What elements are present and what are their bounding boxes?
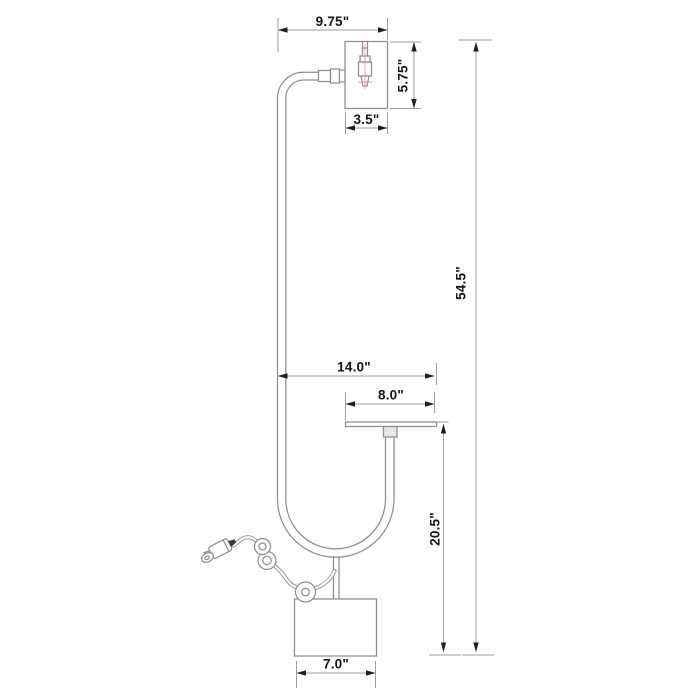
- power-cord: [234, 537, 335, 588]
- cord-coil: [255, 539, 277, 570]
- dim-tray-width: 8.0": [346, 388, 435, 421]
- shelf-mount: [384, 427, 398, 438]
- lamp-pole: [278, 72, 395, 557]
- dim-overall-height: 54.5": [454, 40, 495, 655]
- dim-label-tray-floor-height: 20.5": [428, 512, 443, 546]
- floor-lamp-dimension-diagram: 9.75" 5.75" 3.5" 54.5" 14.0" 8.0": [0, 0, 700, 700]
- diagram-canvas: 9.75" 5.75" 3.5" 54.5" 14.0" 8.0": [0, 0, 700, 700]
- swivel-joint: [319, 69, 346, 83]
- dim-tray-reach: 14.0": [278, 360, 437, 386]
- lamp-base: [295, 599, 377, 656]
- tray-shelf: [346, 422, 437, 427]
- lamp-pole-inner: [286, 80, 386, 549]
- dim-label-shade-width: 3.5": [354, 112, 380, 127]
- lamp-line-art: [200, 42, 437, 657]
- dim-shade-height: 5.75": [390, 42, 421, 109]
- base-stem: [334, 557, 340, 600]
- dim-label-tray-reach: 14.0": [337, 360, 371, 375]
- dim-base-width: 7.0": [297, 657, 376, 689]
- dim-shade-width: 3.5": [346, 112, 388, 134]
- dim-label-overall-height: 54.5": [454, 266, 469, 300]
- dim-label-base-width: 7.0": [323, 657, 349, 672]
- dim-label-head-offset: 9.75": [316, 14, 350, 29]
- cord-grommet: [296, 582, 316, 602]
- dim-label-tray-width: 8.0": [378, 388, 404, 403]
- dim-tray-floor-height: 20.5": [428, 422, 462, 655]
- dim-label-shade-height: 5.75": [396, 59, 411, 93]
